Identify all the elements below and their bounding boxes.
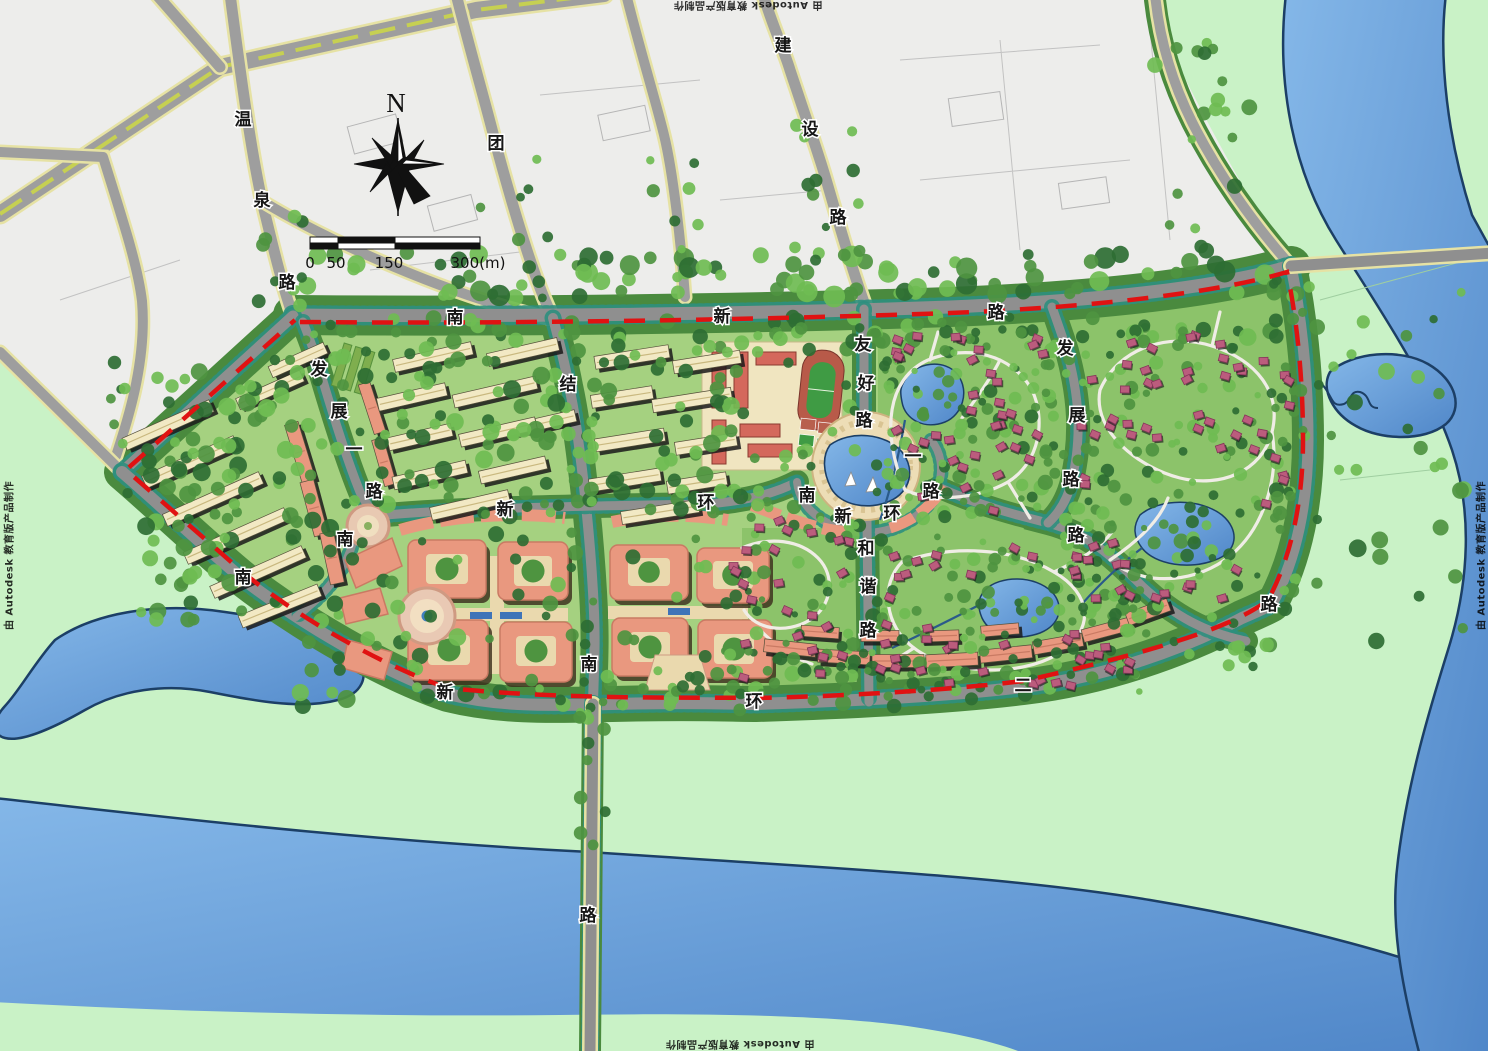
road-label-char: 路 (1261, 594, 1279, 615)
road-label-char: 结 (560, 374, 577, 395)
road-label-char: 路 (923, 481, 941, 502)
road-label-char: 南 (581, 654, 598, 675)
scale-tick-50: 50 (326, 254, 345, 272)
road-label-char: 新 (835, 506, 852, 527)
road-label-char: 路 (279, 272, 297, 293)
road-label-char: 南 (235, 567, 252, 588)
road-label-char: 环 (698, 493, 715, 513)
road-label-char: 一 (346, 440, 363, 460)
road-label-char: 路 (580, 905, 598, 926)
scale-tick-0: 0 (305, 254, 315, 272)
road-label-char: 南 (799, 485, 816, 506)
road-label-char: 温 (235, 110, 252, 130)
road-label-char: 好 (857, 373, 875, 394)
road-label-char: 南 (447, 307, 464, 328)
road-label-char: 路 (366, 481, 384, 502)
road-label-char: 环 (884, 504, 901, 524)
scale-tick-150: 150 (375, 254, 404, 272)
road-label-char: 一 (905, 447, 922, 467)
road-label-char: 建 (775, 35, 792, 56)
road-label-char: 发 (310, 359, 329, 380)
road-label-char: 友 (855, 334, 872, 355)
road-label-char: 展 (1069, 406, 1086, 426)
road-label-char: 路 (1068, 525, 1086, 546)
road-label-char: 展 (331, 402, 348, 422)
road-label-char: 发 (1056, 338, 1075, 359)
road-label-char: 泉 (253, 190, 272, 211)
road-label-char: 新 (437, 682, 454, 703)
road-label-char: 路 (830, 207, 848, 228)
road-label-char: 路 (988, 302, 1006, 323)
road-label-char: 二 (1015, 676, 1032, 696)
road-label-char: 新 (714, 306, 731, 327)
road-label-char: 团 (488, 134, 505, 154)
north-label: N (386, 88, 406, 118)
scale-tick-300: 300(m) (451, 254, 506, 272)
road-label-char: 环 (746, 692, 763, 712)
road-label-char: 南 (337, 529, 354, 550)
road-label-char: 设 (802, 120, 819, 140)
plan-drawing: N (0, 0, 1488, 1051)
road-label-char: 和 (858, 539, 875, 559)
master-plan-map: N (0, 0, 1488, 1051)
road-label-char: 路 (856, 410, 874, 431)
road-label-char: 新 (497, 499, 514, 520)
road-label-char: 路 (1063, 469, 1081, 490)
road-label-char: 谐 (860, 577, 877, 597)
road-label-char: 路 (860, 620, 878, 641)
